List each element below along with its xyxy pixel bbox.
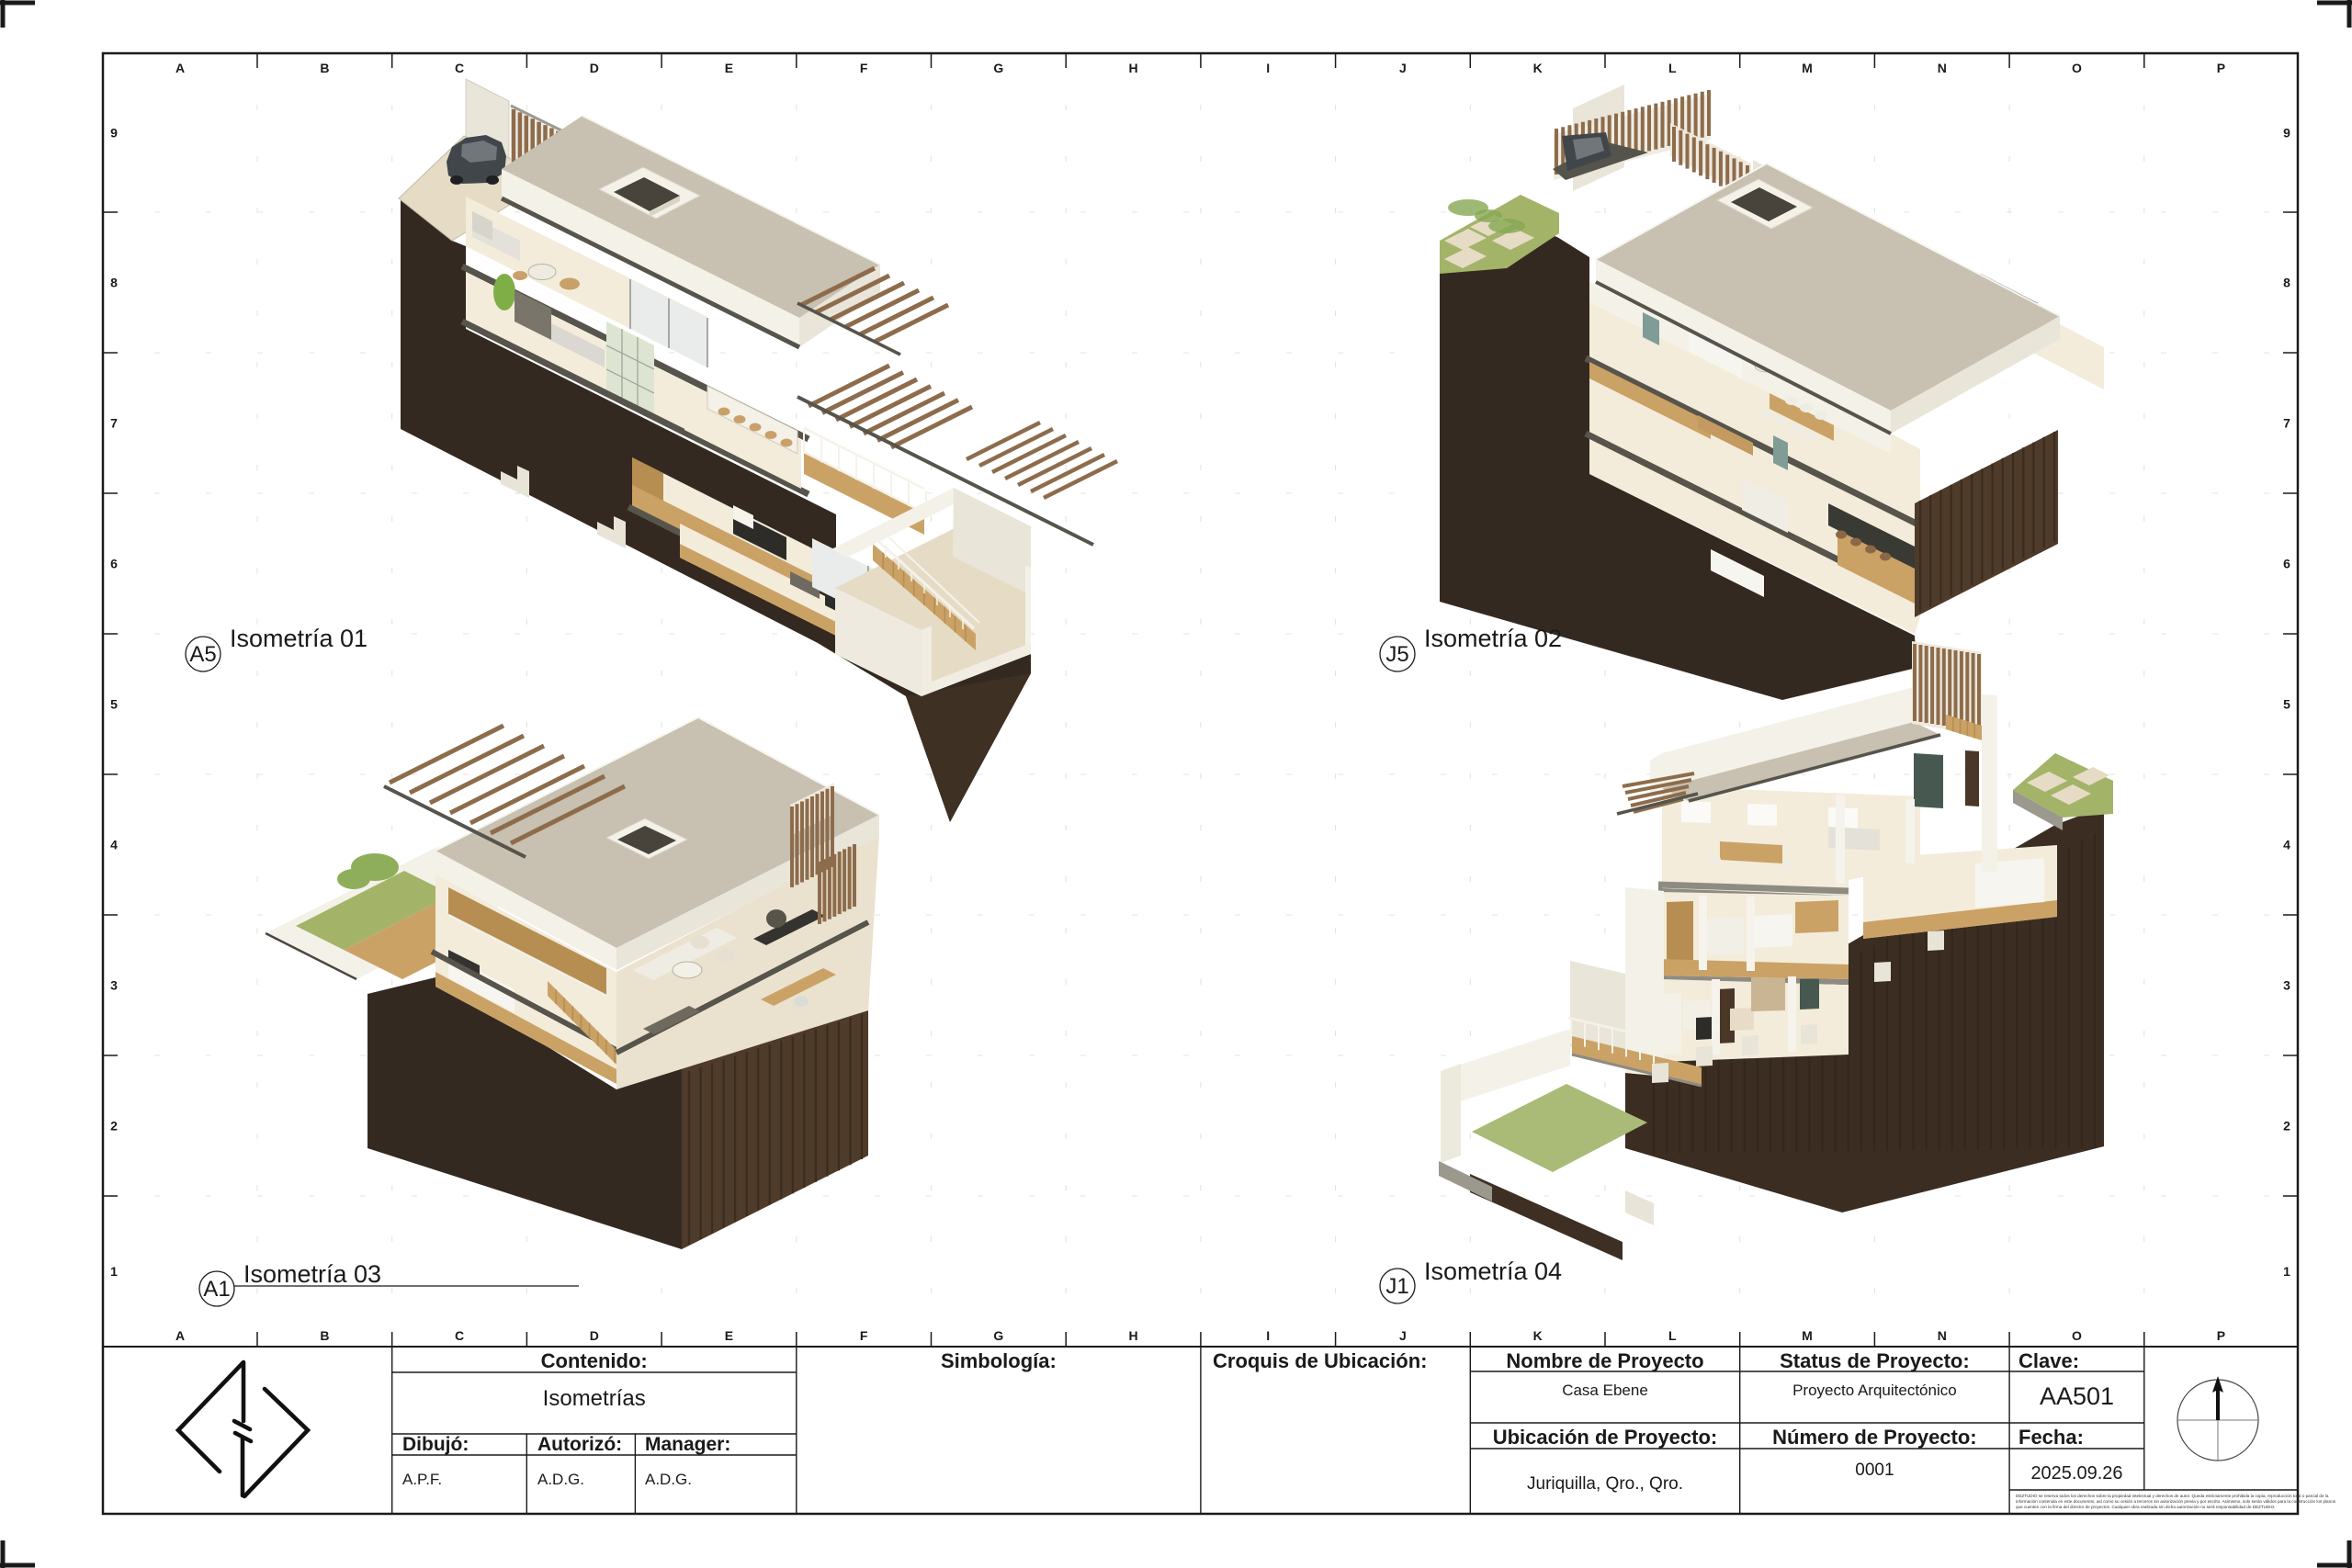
svg-text:Status de Proyecto:: Status de Proyecto: <box>1780 1349 1970 1372</box>
svg-text:Croquis de Ubicación:: Croquis de Ubicación: <box>1213 1349 1427 1372</box>
svg-text:Nombre de Proyecto: Nombre de Proyecto <box>1506 1349 1703 1372</box>
svg-text:O: O <box>2072 61 2082 75</box>
svg-text:Número de Proyecto:: Número de Proyecto: <box>1772 1426 1977 1449</box>
svg-text:Dibujó:: Dibujó: <box>402 1434 469 1455</box>
svg-text:H: H <box>1128 61 1137 75</box>
svg-text:Contenido:: Contenido: <box>541 1349 648 1372</box>
svg-text:Isometría 01: Isometría 01 <box>230 625 367 652</box>
svg-text:Autorizó:: Autorizó: <box>537 1434 622 1455</box>
svg-text:M: M <box>1802 1328 1813 1343</box>
svg-text:L: L <box>1668 1328 1677 1343</box>
svg-text:Isometría 04: Isometría 04 <box>1424 1258 1562 1285</box>
svg-text:P: P <box>2217 1328 2225 1343</box>
svg-text:A: A <box>175 61 185 75</box>
svg-text:L: L <box>1668 61 1677 75</box>
svg-text:3: 3 <box>2283 978 2290 993</box>
svg-text:8: 8 <box>2283 276 2290 290</box>
svg-text:K: K <box>1533 61 1543 75</box>
svg-text:B: B <box>320 1328 329 1343</box>
svg-text:Fecha:: Fecha: <box>2018 1426 2084 1449</box>
svg-text:E: E <box>725 61 733 75</box>
svg-text:7: 7 <box>2283 416 2290 431</box>
svg-text:9: 9 <box>110 126 118 141</box>
svg-text:D: D <box>590 61 599 75</box>
svg-text:5: 5 <box>110 697 118 712</box>
svg-text:F: F <box>860 61 868 75</box>
svg-text:1: 1 <box>110 1264 118 1279</box>
svg-text:información contenida en este: información contenida en este documento,… <box>2016 1499 2336 1504</box>
svg-text:M: M <box>1802 61 1813 75</box>
svg-text:7: 7 <box>110 416 118 431</box>
svg-text:9: 9 <box>2283 126 2290 141</box>
svg-text:C: C <box>455 61 464 75</box>
svg-text:0001: 0001 <box>1855 1461 1894 1480</box>
svg-text:D: D <box>590 1328 599 1343</box>
svg-text:E: E <box>725 1328 733 1343</box>
svg-text:Manager:: Manager: <box>645 1434 730 1455</box>
svg-text:J: J <box>1399 1328 1407 1343</box>
svg-text:A.D.G.: A.D.G. <box>645 1471 692 1488</box>
svg-text:4: 4 <box>2283 838 2290 852</box>
svg-text:J1: J1 <box>1385 1274 1408 1299</box>
svg-text:A.D.G.: A.D.G. <box>537 1471 584 1488</box>
svg-text:J5: J5 <box>1385 642 1408 667</box>
svg-text:G: G <box>993 61 1003 75</box>
svg-text:A: A <box>175 1328 185 1343</box>
svg-text:Clave:: Clave: <box>2018 1349 2079 1372</box>
svg-text:C: C <box>455 1328 464 1343</box>
svg-text:AA501: AA501 <box>2040 1382 2114 1410</box>
svg-text:F: F <box>860 1328 868 1343</box>
svg-text:Proyecto Arquitectónico: Proyecto Arquitectónico <box>1792 1382 1957 1399</box>
svg-text:Ubicación de Proyecto:: Ubicación de Proyecto: <box>1493 1426 1718 1449</box>
svg-text:DEZTUDIO se reserva todos los: DEZTUDIO se reserva todos los derechos s… <box>2016 1494 2329 1498</box>
svg-text:que cuenten con la firma del d: que cuenten con la firma del director de… <box>2016 1505 2275 1509</box>
svg-text:N: N <box>1938 1328 1947 1343</box>
svg-text:G: G <box>993 1328 1003 1343</box>
svg-text:2: 2 <box>110 1119 118 1134</box>
svg-text:1: 1 <box>2283 1264 2290 1279</box>
svg-text:4: 4 <box>110 838 118 852</box>
svg-text:K: K <box>1533 1328 1543 1343</box>
svg-text:Casa Ebene: Casa Ebene <box>1562 1382 1648 1399</box>
svg-text:Isometría 02: Isometría 02 <box>1424 625 1562 652</box>
svg-text:H: H <box>1128 1328 1137 1343</box>
svg-text:3: 3 <box>110 978 118 993</box>
svg-text:Isometría 03: Isometría 03 <box>243 1260 381 1288</box>
svg-text:I: I <box>1266 61 1270 75</box>
svg-text:Juriquilla, Qro., Qro.: Juriquilla, Qro., Qro. <box>1527 1474 1683 1494</box>
svg-text:2: 2 <box>2283 1119 2290 1134</box>
svg-text:O: O <box>2072 1328 2082 1343</box>
svg-text:J: J <box>1399 61 1407 75</box>
svg-text:A1: A1 <box>203 1277 230 1302</box>
svg-text:8: 8 <box>110 276 118 290</box>
svg-text:P: P <box>2217 61 2225 75</box>
svg-text:2025.09.26: 2025.09.26 <box>2030 1463 2122 1483</box>
svg-text:6: 6 <box>2283 557 2290 571</box>
svg-text:Isometrías: Isometrías <box>543 1386 646 1411</box>
svg-text:B: B <box>320 61 329 75</box>
svg-text:Simbología:: Simbología: <box>941 1349 1057 1372</box>
svg-text:A5: A5 <box>189 642 216 667</box>
svg-text:N: N <box>1938 61 1947 75</box>
svg-text:A.P.F.: A.P.F. <box>402 1471 442 1488</box>
svg-text:5: 5 <box>2283 697 2290 712</box>
svg-text:6: 6 <box>110 557 118 571</box>
svg-text:I: I <box>1266 1328 1270 1343</box>
